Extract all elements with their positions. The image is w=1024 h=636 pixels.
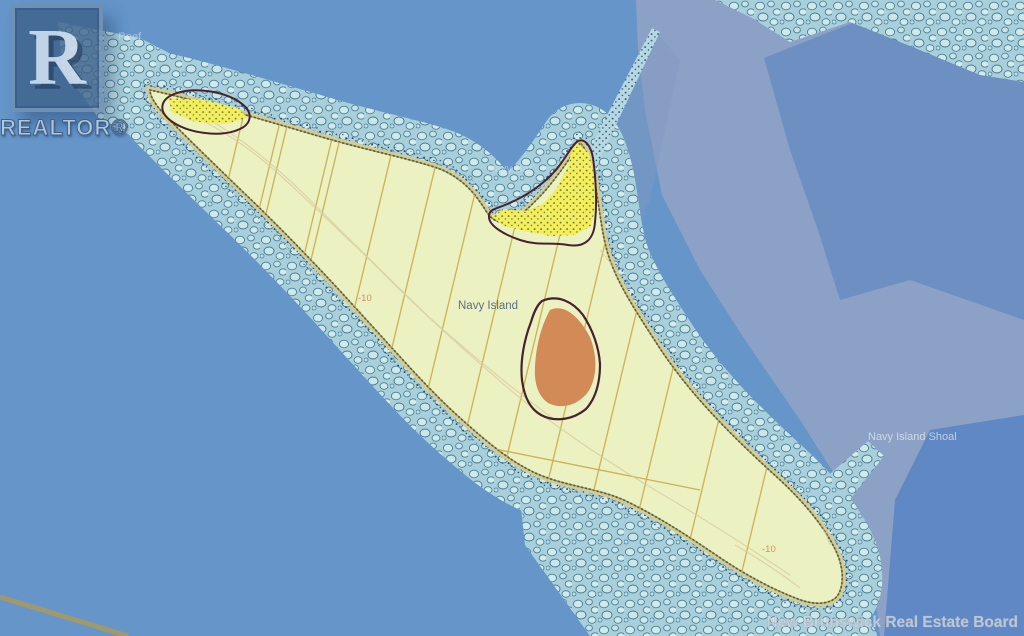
- attribution-watermark: New Brunswick Real Estate Board: [766, 614, 1018, 631]
- reef-label: Reef: [118, 31, 142, 43]
- shoal-label: Navy Island Shoal: [868, 431, 957, 443]
- depth-label-west: -10: [358, 293, 372, 304]
- map-viewport: Reef Navy Bar Navy Island Navy Island Sh…: [0, 0, 1024, 636]
- depth-label-east: -10: [762, 544, 776, 555]
- island-label: Navy Island: [458, 300, 518, 312]
- sand-bar-label: Navy Bar: [487, 163, 533, 175]
- map-canvas[interactable]: Reef Navy Bar Navy Island Navy Island Sh…: [0, 0, 1024, 636]
